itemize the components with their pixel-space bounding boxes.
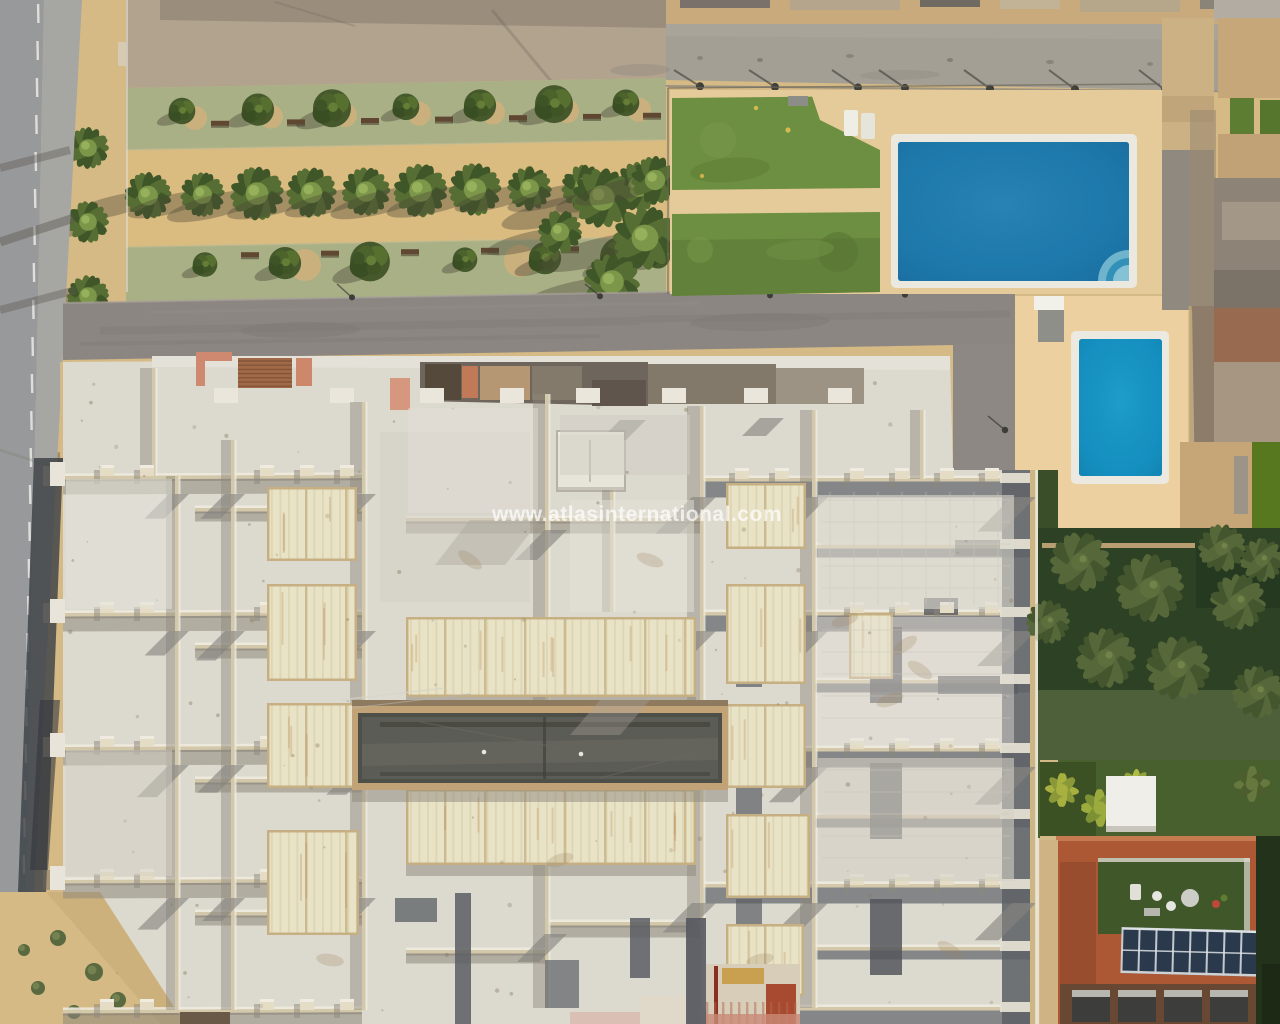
svg-text:www.atlasinternational.com: www.atlasinternational.com <box>491 503 782 526</box>
